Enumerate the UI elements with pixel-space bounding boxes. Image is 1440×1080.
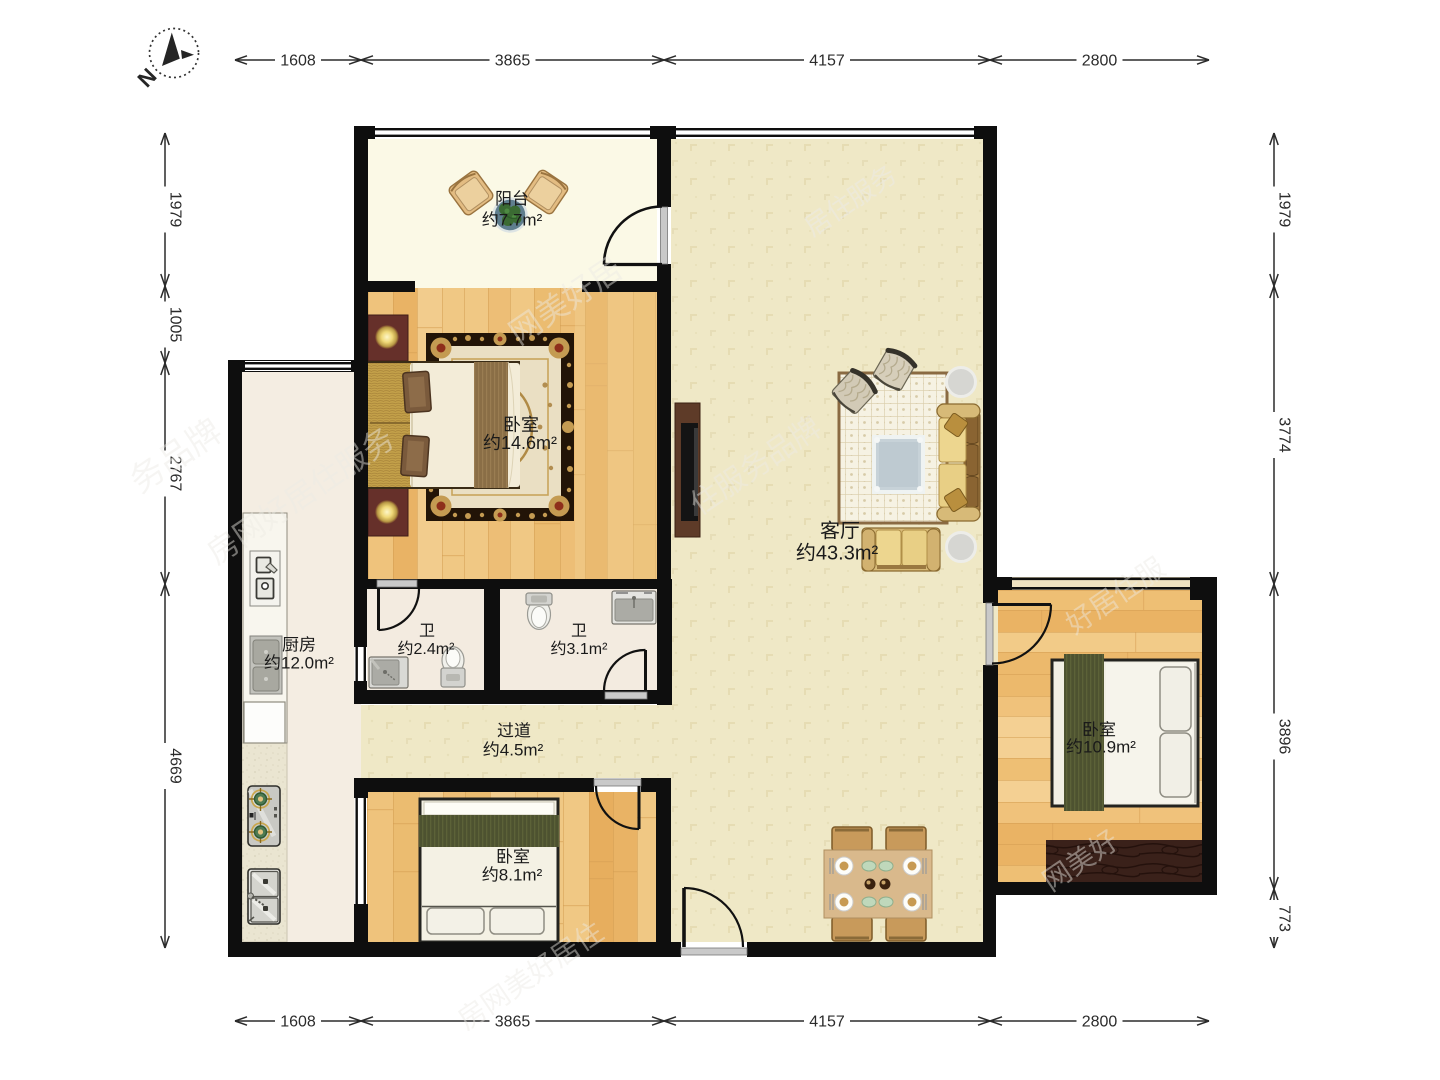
svg-text:1979: 1979 xyxy=(167,192,184,228)
svg-text:1979: 1979 xyxy=(1276,192,1293,228)
svg-text:3.1m²: 3.1m² xyxy=(567,641,609,658)
svg-text:2.4m²: 2.4m² xyxy=(414,641,456,658)
svg-text:3896: 3896 xyxy=(1276,719,1293,755)
svg-text:10.9m²: 10.9m² xyxy=(1083,737,1136,756)
svg-text:2800: 2800 xyxy=(1082,1014,1118,1031)
svg-text:8.1m²: 8.1m² xyxy=(499,865,543,884)
svg-text:4.5m²: 4.5m² xyxy=(500,740,544,759)
svg-text:2800: 2800 xyxy=(1082,53,1118,70)
svg-text:12.0m²: 12.0m² xyxy=(281,653,334,672)
svg-text:1608: 1608 xyxy=(280,1014,316,1031)
svg-text:3774: 3774 xyxy=(1276,417,1293,453)
svg-text:4669: 4669 xyxy=(167,748,184,784)
svg-text:4157: 4157 xyxy=(809,1014,845,1031)
svg-text:3865: 3865 xyxy=(495,53,531,70)
svg-text:773: 773 xyxy=(1276,905,1293,932)
svg-text:4157: 4157 xyxy=(809,53,845,70)
svg-text:1005: 1005 xyxy=(167,307,184,343)
svg-text:3865: 3865 xyxy=(495,1014,531,1031)
svg-text:1608: 1608 xyxy=(280,53,316,70)
svg-text:43.3m²: 43.3m² xyxy=(816,543,879,565)
svg-text:14.6m²: 14.6m² xyxy=(501,433,557,453)
svg-text:7.7m²: 7.7m² xyxy=(499,210,543,229)
